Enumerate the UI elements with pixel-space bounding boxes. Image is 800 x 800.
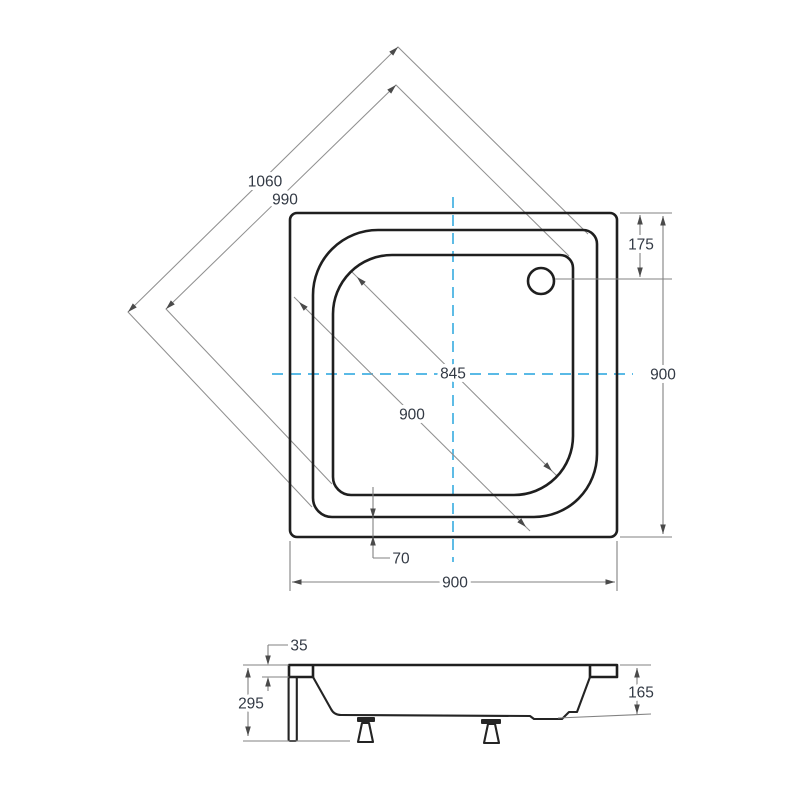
- shower-tray-drawing: 1060 990: [0, 0, 800, 800]
- dim-label-diag-outer: 1060: [248, 174, 283, 191]
- arrowhead: [660, 525, 666, 535]
- dim-label-panel-inset: 35: [290, 638, 307, 655]
- side-basin-profile: [313, 677, 590, 719]
- arrowhead: [660, 216, 666, 226]
- dim-label-mid-diagonal: 900: [399, 407, 425, 424]
- arrowhead: [265, 656, 271, 666]
- dim-height-right: 900: [620, 216, 676, 537]
- dim-label-diag-inner: 990: [272, 192, 298, 209]
- arrowhead: [245, 668, 251, 678]
- dim-label-apron: 70: [392, 551, 410, 568]
- arrowhead: [634, 705, 640, 715]
- dim-diagonal-inner-line: [166, 85, 569, 484]
- plan-view: 1060 990: [126, 45, 676, 591]
- foot-mount-left: [357, 717, 375, 722]
- dim-apron-lines: [373, 487, 390, 558]
- arrowhead: [634, 668, 640, 678]
- side-view: 35 295 165: [238, 638, 654, 744]
- dim-diagonal-inner: 990: [164, 83, 569, 484]
- arrowhead: [637, 268, 643, 278]
- dim-label-height-right: 900: [650, 367, 676, 384]
- arrowhead: [292, 579, 302, 585]
- foot-left: [358, 723, 373, 742]
- dim-label-tray-depth: 165: [628, 685, 654, 702]
- dim-label-drain-offset: 175: [628, 237, 654, 254]
- arrowhead: [265, 677, 271, 687]
- dim-label-width-bottom: 900: [442, 575, 468, 592]
- front-panel: [289, 677, 297, 741]
- side-outline: [289, 665, 617, 743]
- dim-tray-depth: 165: [558, 665, 654, 718]
- dim-apron: 70: [370, 487, 410, 568]
- drain-hole: [528, 268, 554, 294]
- dim-label-basin-diagonal: 845: [440, 366, 466, 383]
- technical-drawing-page: 1060 990: [0, 0, 800, 800]
- side-rim: [289, 665, 617, 677]
- dim-label-total-height: 295: [238, 696, 264, 713]
- foot-right: [484, 724, 499, 743]
- arrowhead: [606, 579, 616, 585]
- arrowhead: [637, 215, 643, 225]
- arrowhead: [245, 727, 251, 737]
